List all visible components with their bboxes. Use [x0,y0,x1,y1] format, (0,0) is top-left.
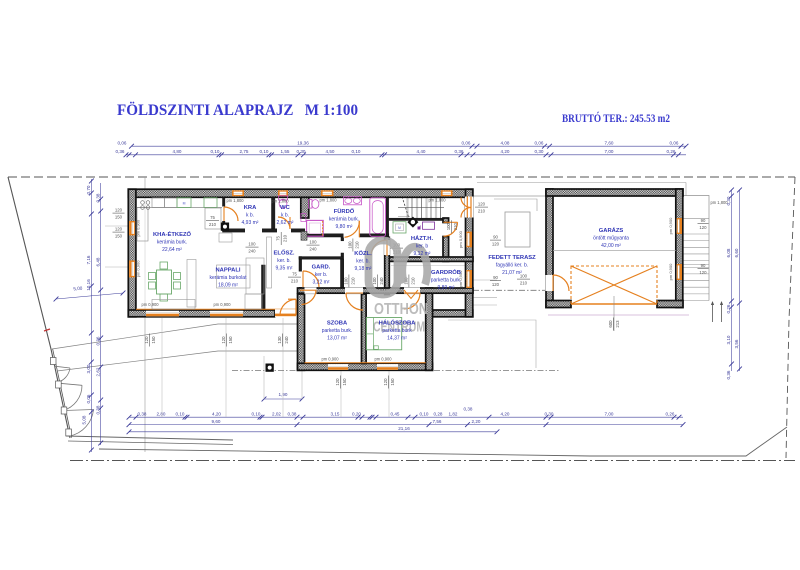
svg-text:7,00: 7,00 [605,411,614,416]
svg-text:parketta burk: parketta burk [382,328,412,334]
svg-text:600: 600 [608,320,613,328]
svg-text:4,93 m²: 4,93 m² [242,220,259,226]
svg-text:150: 150 [115,215,123,220]
svg-text:0,26: 0,26 [726,304,731,313]
svg-text:KÖZL.: KÖZL. [354,250,372,257]
svg-text:90: 90 [701,218,706,223]
svg-text:150: 150 [151,336,156,344]
svg-text:2,75: 2,75 [240,149,249,154]
svg-text:120: 120 [383,378,388,386]
svg-text:21,16: 21,16 [398,426,410,431]
svg-text:0,38: 0,38 [288,411,297,416]
svg-text:3,10: 3,10 [726,335,731,344]
svg-text:4,80: 4,80 [173,149,182,154]
svg-text:2,62 m²: 2,62 m² [277,220,294,226]
svg-text:10,16: 10,16 [86,279,91,291]
svg-text:210: 210 [410,277,415,285]
svg-text:M: M [398,226,401,230]
svg-text:kerámia burk.: kerámia burk. [329,217,359,223]
svg-text:9,60: 9,60 [212,419,221,424]
svg-text:OTTHON: OTTHON [374,301,428,318]
svg-text:parketta burk.: parketta burk. [322,328,353,334]
svg-text:0,36: 0,36 [95,336,100,345]
svg-text:100: 100 [343,277,348,285]
svg-text:4,20: 4,20 [501,149,510,154]
svg-text:0,20: 0,20 [352,411,361,416]
svg-text:k b.: k b. [281,213,289,219]
svg-text:0,26: 0,26 [667,149,676,154]
svg-text:HÁZT.H.: HÁZT.H. [411,235,434,242]
svg-text:240: 240 [284,336,289,344]
svg-text:fagyálló ker. b.: fagyálló ker. b. [496,263,528,269]
svg-text:NAPPALI: NAPPALI [215,268,240,274]
svg-text:0,38: 0,38 [95,405,100,414]
svg-text:ELŐSZ.: ELŐSZ. [274,250,295,257]
svg-text:75: 75 [210,215,215,220]
svg-text:90: 90 [493,235,498,240]
svg-text:M: M [183,201,186,205]
svg-text:pm 0,900: pm 0,900 [136,219,141,236]
svg-text:0,30: 0,30 [535,149,544,154]
svg-text:120: 120 [492,282,500,287]
svg-text:90: 90 [701,263,706,268]
svg-text:kerámia burkolat: kerámia burkolat [210,275,248,281]
svg-text:3,22 m²: 3,22 m² [313,280,330,286]
svg-text:0,38: 0,38 [95,193,100,202]
svg-text:pm 1,800: pm 1,800 [428,198,446,203]
svg-text:pm 0,900: pm 0,900 [668,217,673,234]
svg-text:120: 120 [699,225,707,230]
svg-text:100: 100 [309,240,317,245]
svg-text:SZOBA: SZOBA [327,321,348,327]
svg-text:ker. b.: ker. b. [356,259,370,265]
svg-text:0,38: 0,38 [464,407,473,412]
svg-text:0,36: 0,36 [116,149,125,154]
svg-text:100: 100 [446,223,451,231]
svg-text:240: 240 [309,247,317,252]
svg-text:4,20: 4,20 [212,411,221,416]
svg-text:pm 0,900: pm 0,900 [458,230,463,247]
svg-text:2,62: 2,62 [95,367,100,376]
svg-text:9,80 m²: 9,80 m² [336,224,353,230]
svg-text:0,36: 0,36 [455,149,464,154]
svg-text:120: 120 [478,202,486,207]
svg-text:213: 213 [615,320,620,328]
svg-text:0,45: 0,45 [391,411,400,416]
svg-text:kerámia burk.: kerámia burk. [157,240,187,246]
svg-text:0,30: 0,30 [545,411,554,416]
svg-text:pm 1,800: pm 1,800 [710,200,728,205]
svg-text:6,48: 6,48 [95,257,100,266]
svg-text:parketta burk.: parketta burk. [431,278,462,284]
svg-text:5,00: 5,00 [73,286,83,292]
svg-text:120: 120 [492,242,500,247]
svg-text:14,37 m²: 14,37 m² [387,336,407,342]
svg-text:150: 150 [342,378,347,386]
svg-text:0,10: 0,10 [260,149,269,154]
svg-text:HÁLÓSZOBA: HÁLÓSZOBA [379,319,417,327]
svg-text:120: 120 [699,270,707,275]
svg-text:100: 100 [347,241,352,249]
svg-text:9,18 m²: 9,18 m² [355,266,372,272]
svg-text:18,09 m²: 18,09 m² [218,283,238,289]
svg-text:120: 120 [115,208,123,213]
svg-text:240: 240 [248,249,256,254]
svg-text:3,15: 3,15 [331,411,340,416]
svg-text:pm 0,900: pm 0,900 [374,357,392,362]
svg-text:4,40: 4,40 [417,149,426,154]
svg-text:13,07 m²: 13,07 m² [327,336,347,342]
svg-text:210: 210 [478,209,486,214]
svg-text:0,70: 0,70 [86,185,91,194]
svg-text:0,10: 0,10 [211,149,220,154]
svg-text:5,08: 5,08 [82,415,87,424]
svg-text:KRA: KRA [244,205,257,211]
svg-text:120: 120 [144,336,149,344]
svg-text:150: 150 [228,336,233,344]
svg-text:öntött műgyanta: öntött műgyanta [593,236,629,242]
svg-text:6,60: 6,60 [734,248,739,257]
svg-text:7,60: 7,60 [605,140,614,145]
svg-text:6,08: 6,08 [726,248,731,257]
svg-text:150: 150 [390,378,395,386]
svg-text:pm 0,900: pm 0,900 [136,260,141,277]
svg-text:75: 75 [276,236,281,241]
svg-text:210: 210 [350,277,355,285]
svg-text:0,06: 0,06 [670,140,679,145]
svg-text:130: 130 [277,336,282,344]
svg-text:0,38: 0,38 [138,411,147,416]
svg-text:100: 100 [248,242,256,247]
svg-text:90: 90 [493,275,498,280]
svg-text:FÖLDSZINTI ALAPRAJZ M 1:100: FÖLDSZINTI ALAPRAJZ M 1:100 [117,101,358,119]
svg-text:7,16: 7,16 [86,255,91,264]
svg-text:1,82: 1,82 [449,411,458,416]
svg-text:7,00: 7,00 [605,149,614,154]
svg-text:19,36: 19,36 [297,140,309,145]
svg-text:2,80: 2,80 [157,411,166,416]
svg-text:WC: WC [280,205,290,211]
svg-text:0,10: 0,10 [420,411,429,416]
svg-text:0,06: 0,06 [118,140,127,145]
svg-text:9,89 m²: 9,89 m² [438,285,455,291]
svg-text:21,07 m²: 21,07 m² [502,270,522,276]
svg-text:pm 0,900: pm 0,900 [141,302,159,307]
svg-text:pm 0,900: pm 0,900 [321,357,339,362]
svg-text:pm 1,800: pm 1,800 [271,199,289,204]
svg-text:0,06: 0,06 [535,140,544,145]
svg-text:120: 120 [115,227,123,232]
svg-text:7,56: 7,56 [433,419,442,424]
svg-text:k b.: k b. [246,213,254,219]
svg-text:pm 0,900: pm 0,900 [213,302,231,307]
svg-text:pm 1,800: pm 1,800 [319,198,337,203]
svg-text:210: 210 [291,279,299,284]
svg-text:4,08: 4,08 [501,140,510,145]
svg-text:GARD.: GARD. [312,265,331,271]
svg-text:0,06: 0,06 [462,140,471,145]
svg-text:210: 210 [520,281,528,286]
svg-text:4,20: 4,20 [501,411,510,416]
svg-text:210: 210 [209,222,217,227]
svg-text:42,00 m²: 42,00 m² [601,243,621,249]
svg-text:GARDRÓB: GARDRÓB [431,268,461,276]
svg-text:0,10: 0,10 [252,411,261,416]
svg-text:1,55: 1,55 [281,149,290,154]
svg-text:150: 150 [115,234,123,239]
svg-text:0,10: 0,10 [176,411,185,416]
svg-text:ker. b: ker. b [416,244,428,250]
svg-text:pm 1,800: pm 1,800 [226,198,244,203]
svg-text:75: 75 [292,272,297,277]
svg-text:210: 210 [283,234,288,242]
svg-text:210: 210 [354,241,359,249]
svg-text:0,26: 0,26 [666,411,675,416]
svg-text:GARÁZS: GARÁZS [599,227,624,234]
svg-text:9,12 m²: 9,12 m² [414,251,431,257]
svg-text:3,56: 3,56 [734,339,739,348]
svg-text:pm 0,900: pm 0,900 [668,263,673,280]
svg-text:FEDETT TERASZ: FEDETT TERASZ [488,255,536,261]
svg-text:2,02: 2,02 [272,411,281,416]
svg-text:ker b.: ker b. [315,272,328,278]
svg-text:0,30: 0,30 [297,149,306,154]
svg-text:KHA-ÉTKEZŐ: KHA-ÉTKEZŐ [153,230,191,238]
svg-text:FÜRDŐ: FÜRDŐ [334,208,355,215]
svg-text:2,20: 2,20 [472,419,481,424]
svg-text:210: 210 [453,223,458,231]
svg-text:4,50: 4,50 [326,149,335,154]
svg-text:9,35 m²: 9,35 m² [276,266,293,272]
svg-text:120: 120 [221,336,226,344]
svg-text:0,36: 0,36 [726,370,731,379]
svg-text:0,06: 0,06 [86,394,91,403]
svg-text:0,28: 0,28 [434,411,443,416]
svg-text:0,10: 0,10 [352,149,361,154]
svg-text:3,00: 3,00 [86,364,91,373]
svg-text:BRUTTÓ TER.: 245.53 m2: BRUTTÓ TER.: 245.53 m2 [562,113,670,125]
svg-text:22,64 m²: 22,64 m² [162,247,182,253]
svg-text:240: 240 [379,277,384,285]
svg-text:120: 120 [335,378,340,386]
svg-text:ker. b.: ker. b. [277,258,291,264]
